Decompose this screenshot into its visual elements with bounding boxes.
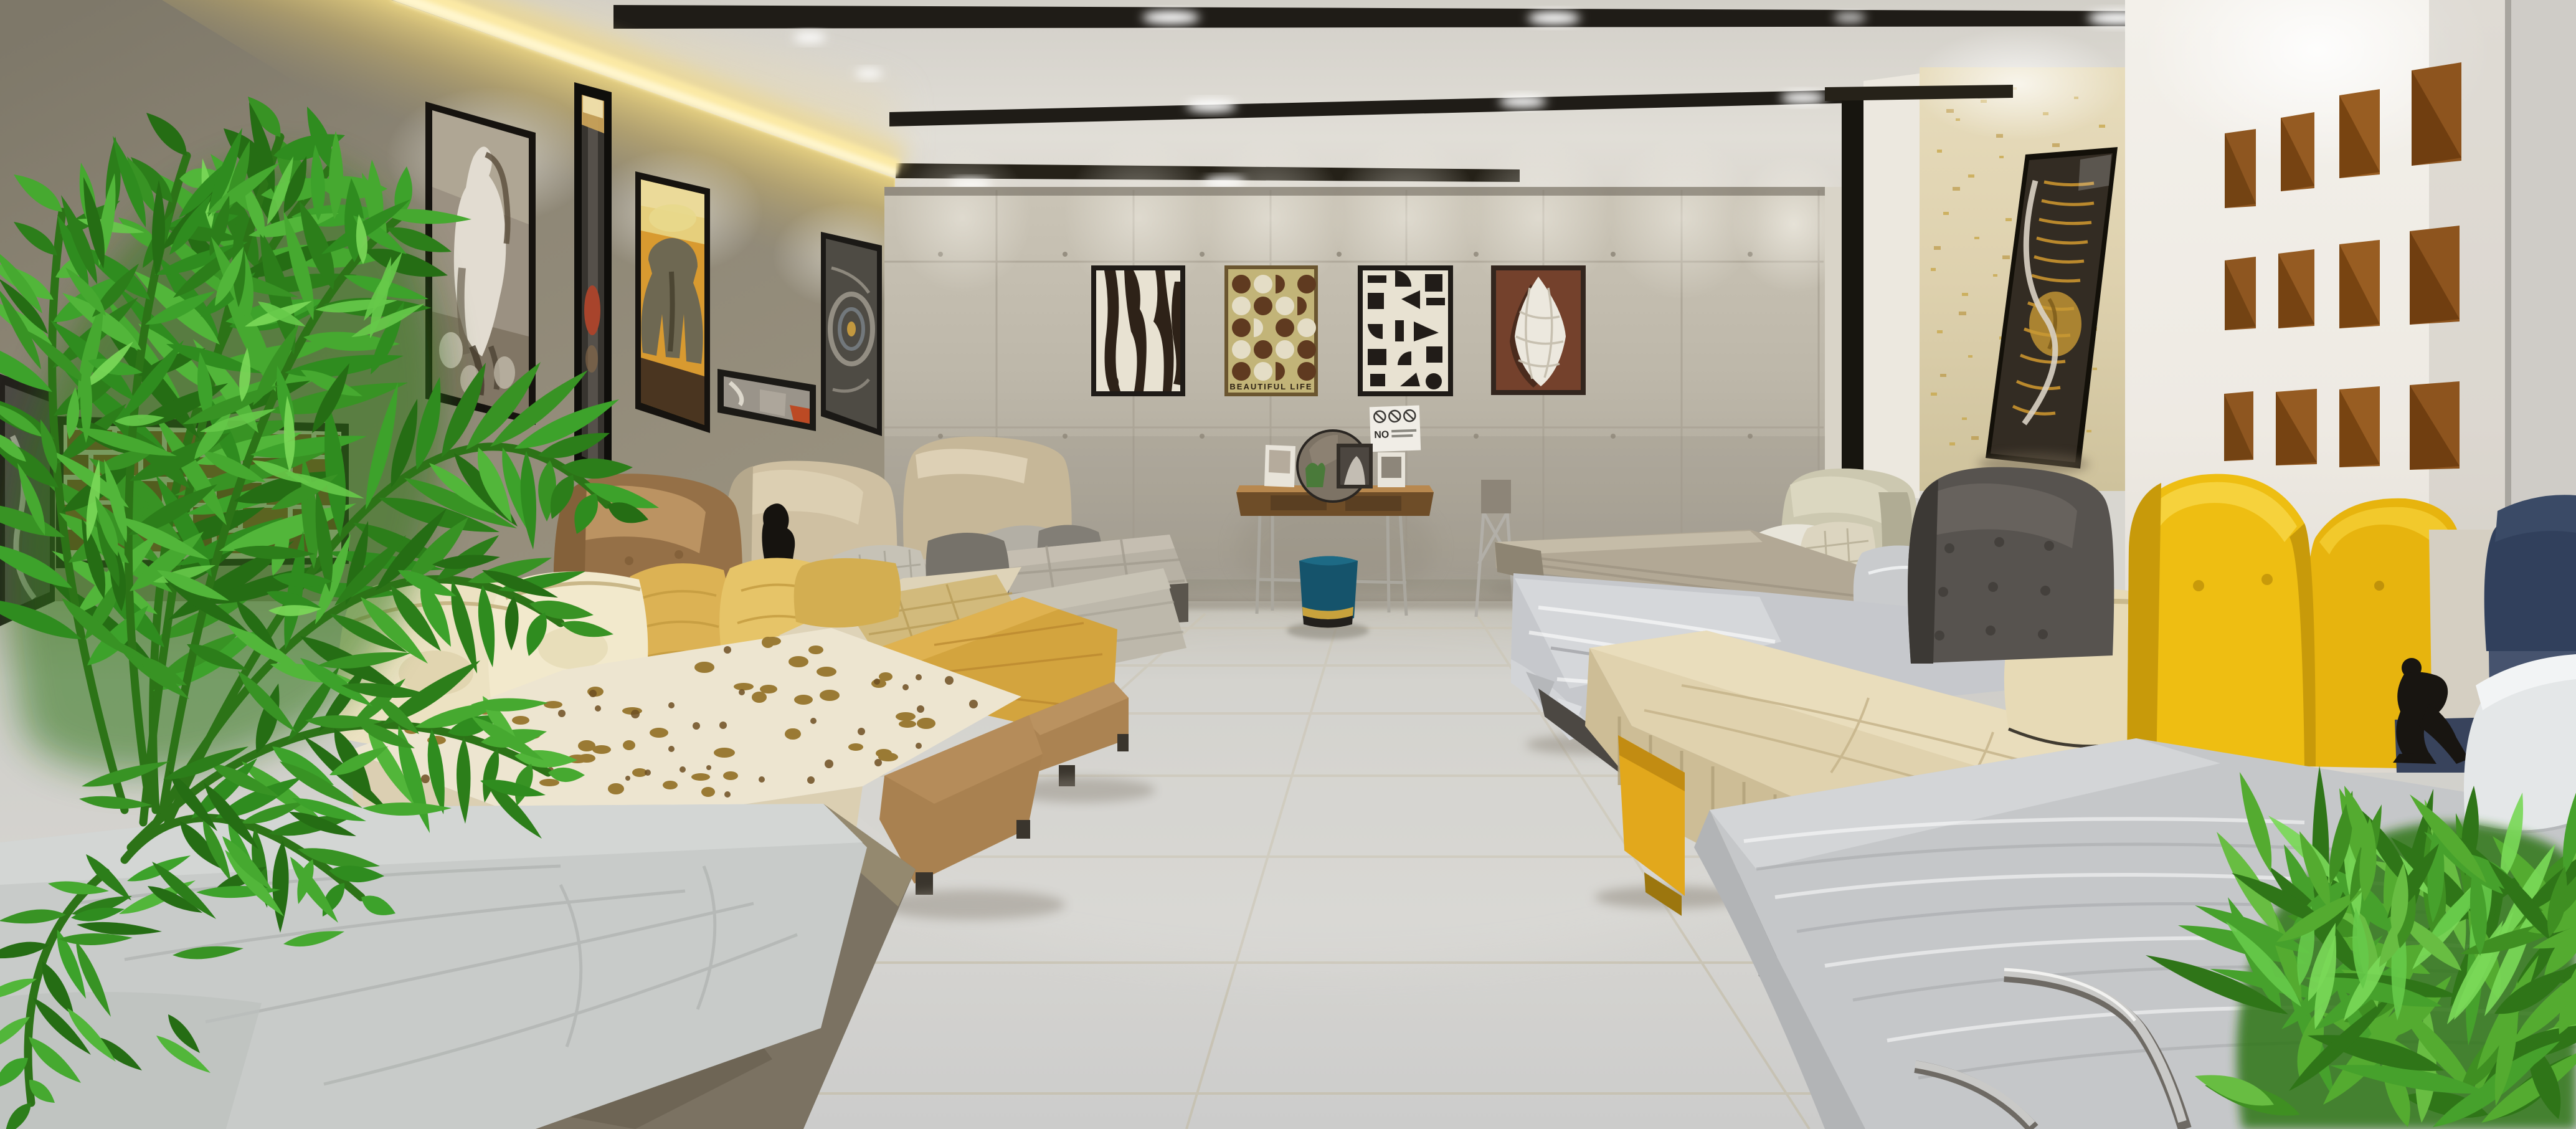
svg-text:BEAUTIFUL LIFE: BEAUTIFUL LIFE bbox=[1229, 382, 1312, 391]
svg-text:NO: NO bbox=[1374, 429, 1390, 441]
